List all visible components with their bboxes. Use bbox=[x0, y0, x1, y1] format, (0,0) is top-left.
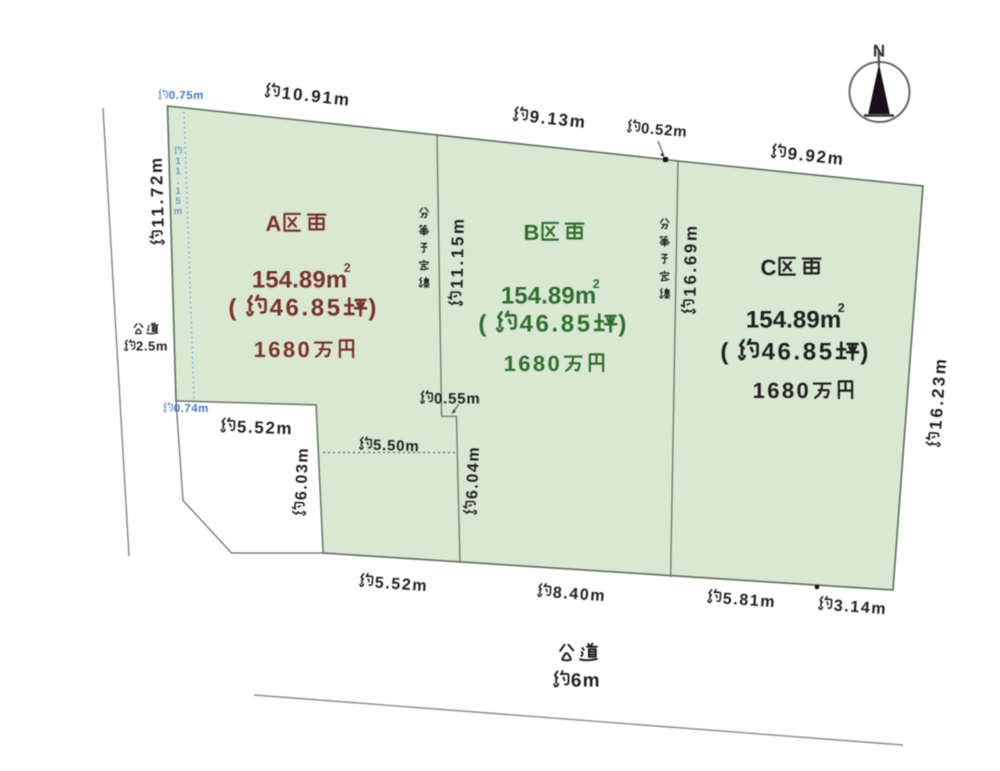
svg-text:154.89m: 154.89m bbox=[746, 307, 841, 334]
svg-text:46.85: 46.85 bbox=[520, 311, 593, 338]
svg-text:1680: 1680 bbox=[504, 351, 563, 376]
svg-text:(: ( bbox=[478, 311, 489, 338]
svg-text:N: N bbox=[873, 42, 885, 61]
svg-text:6m: 6m bbox=[571, 671, 601, 692]
svg-text:11.72m: 11.72m bbox=[147, 155, 168, 228]
svg-text:0.74m: 0.74m bbox=[174, 403, 209, 415]
svg-text:): ) bbox=[860, 339, 871, 366]
svg-text:2.5m: 2.5m bbox=[136, 339, 168, 354]
svg-text:): ) bbox=[368, 295, 379, 322]
svg-text:46.85: 46.85 bbox=[270, 295, 343, 322]
svg-text:): ) bbox=[618, 311, 629, 338]
svg-text:154.89m: 154.89m bbox=[501, 283, 596, 310]
svg-text:1680: 1680 bbox=[254, 337, 313, 362]
svg-text:46.85: 46.85 bbox=[762, 339, 835, 366]
svg-text:B: B bbox=[524, 220, 543, 245]
svg-text:C: C bbox=[761, 255, 780, 280]
svg-text:5.50m: 5.50m bbox=[373, 437, 420, 456]
svg-text:6.03m: 6.03m bbox=[293, 446, 312, 500]
svg-text:154.89m: 154.89m bbox=[252, 267, 347, 294]
svg-text:0.55m: 0.55m bbox=[434, 390, 481, 407]
svg-text:0.75m: 0.75m bbox=[169, 90, 204, 102]
svg-text:11.15m: 11.15m bbox=[448, 216, 468, 289]
svg-text:2: 2 bbox=[344, 261, 351, 275]
svg-text:m: m bbox=[174, 206, 182, 217]
svg-text:5.52m: 5.52m bbox=[237, 417, 294, 438]
svg-text:16.69m: 16.69m bbox=[681, 223, 701, 297]
svg-text:6.04m: 6.04m bbox=[464, 445, 483, 499]
svg-text:2: 2 bbox=[593, 277, 600, 291]
svg-text:(: ( bbox=[720, 339, 731, 366]
svg-text:A: A bbox=[266, 211, 285, 236]
svg-text:(: ( bbox=[228, 295, 239, 322]
svg-text:2: 2 bbox=[838, 301, 845, 315]
svg-text:1680: 1680 bbox=[753, 378, 812, 403]
